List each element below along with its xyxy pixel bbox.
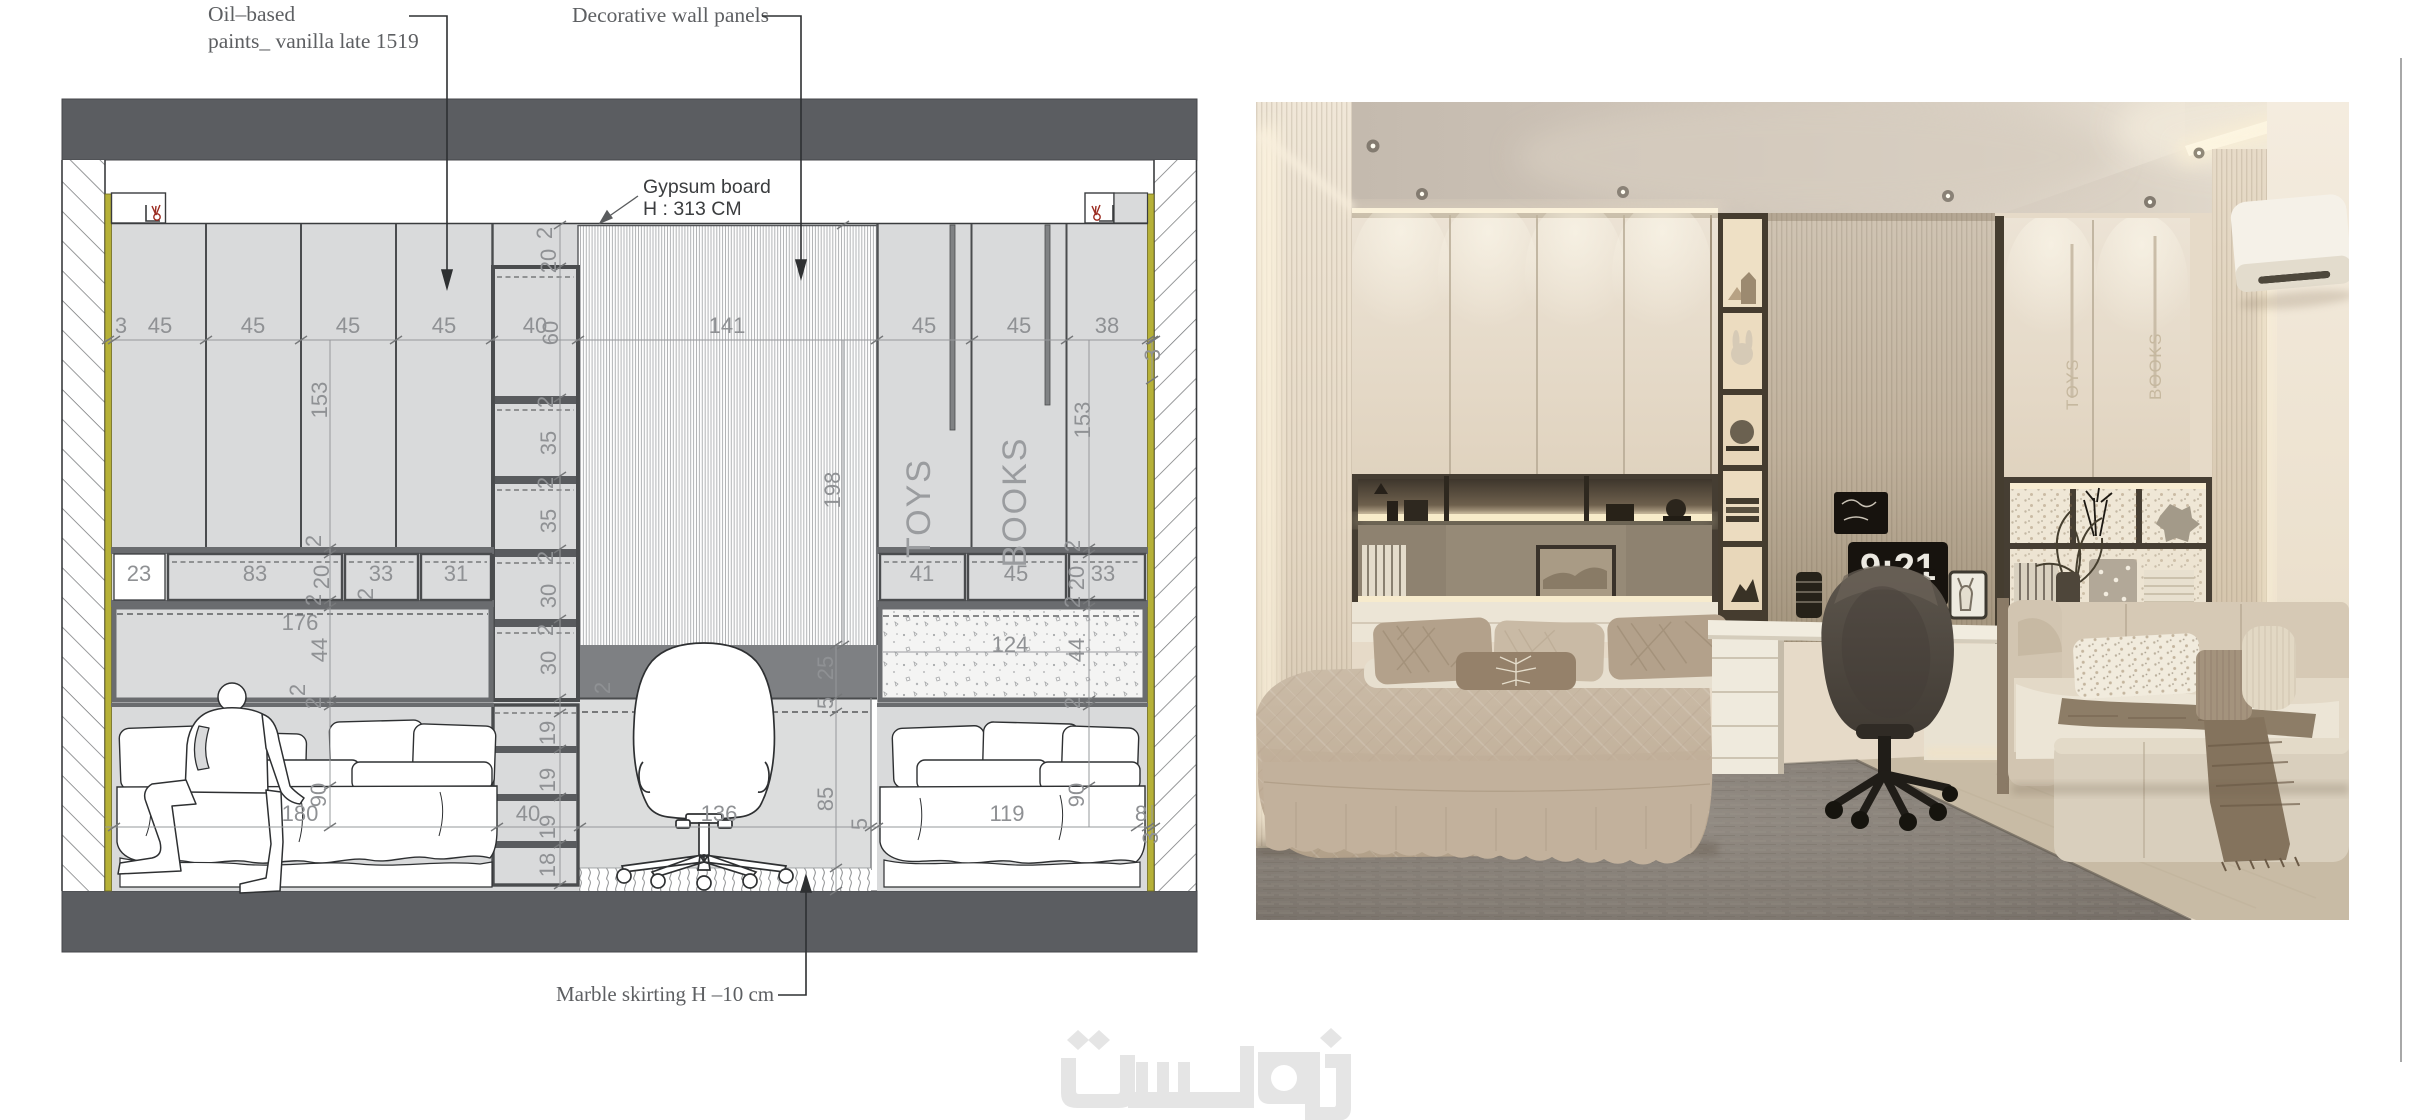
svg-text:23: 23 [127, 561, 151, 586]
svg-text:33: 33 [1091, 561, 1115, 586]
svg-text:45: 45 [1004, 561, 1028, 586]
svg-text:2: 2 [353, 588, 378, 600]
svg-text:35: 35 [536, 509, 561, 533]
svg-text:2: 2 [1060, 596, 1085, 608]
svg-text:2: 2 [533, 477, 558, 489]
svg-text:2: 2 [533, 396, 558, 408]
svg-text:119: 119 [989, 801, 1024, 826]
svg-text:2: 2 [533, 624, 558, 636]
svg-text:153: 153 [307, 382, 332, 419]
svg-text:18: 18 [535, 853, 560, 877]
svg-text:45: 45 [1007, 313, 1031, 338]
svg-text:Marble skirting H –10 cm: Marble skirting H –10 cm [556, 982, 774, 1006]
svg-text:85: 85 [813, 787, 838, 811]
svg-text:2: 2 [1060, 697, 1085, 709]
svg-text:BOOKS: BOOKS [996, 437, 1034, 568]
svg-text:38: 38 [1095, 313, 1119, 338]
svg-text:45: 45 [241, 313, 265, 338]
svg-text:20: 20 [536, 249, 561, 273]
svg-text:141: 141 [709, 313, 746, 338]
svg-text:44: 44 [1064, 638, 1089, 662]
svg-text:2: 2 [1060, 540, 1085, 552]
svg-text:44: 44 [307, 638, 332, 662]
svg-text:45: 45 [148, 313, 172, 338]
svg-text:3: 3 [1138, 832, 1163, 844]
svg-text:198: 198 [820, 472, 845, 509]
svg-text:BOOKS: BOOKS [2146, 332, 2165, 400]
svg-text:H : 313 CM: H : 313 CM [643, 198, 742, 220]
svg-text:30: 30 [536, 584, 561, 608]
svg-text:45: 45 [912, 313, 936, 338]
svg-text:176: 176 [282, 610, 319, 635]
svg-text:2: 2 [301, 697, 326, 709]
svg-text:19: 19 [535, 768, 560, 792]
svg-text:20: 20 [1064, 566, 1089, 590]
svg-text:153: 153 [1070, 402, 1095, 439]
svg-text:paints_ vanilla late 1519: paints_ vanilla late 1519 [208, 29, 419, 53]
svg-text:5: 5 [847, 818, 872, 830]
svg-text:25: 25 [813, 656, 838, 680]
svg-text:124: 124 [992, 632, 1029, 657]
svg-text:Gypsum board: Gypsum board [643, 176, 771, 198]
svg-text:90: 90 [306, 783, 331, 807]
svg-text:90: 90 [1064, 783, 1089, 807]
svg-text:Oil–based: Oil–based [208, 2, 295, 26]
svg-text:2: 2 [301, 535, 326, 547]
svg-text:19: 19 [535, 721, 560, 745]
svg-text:2: 2 [590, 682, 615, 694]
svg-text:3: 3 [115, 313, 127, 338]
svg-text:2: 2 [301, 594, 326, 606]
svg-text:20: 20 [309, 565, 334, 589]
svg-text:33: 33 [369, 561, 393, 586]
svg-text:19: 19 [535, 815, 560, 839]
svg-text:TOYS: TOYS [900, 458, 938, 558]
svg-text:5: 5 [813, 697, 838, 709]
svg-text:TOYS: TOYS [2063, 358, 2082, 410]
svg-text:35: 35 [536, 431, 561, 455]
svg-text:45: 45 [432, 313, 456, 338]
svg-text:30: 30 [536, 651, 561, 675]
svg-text:2: 2 [532, 227, 557, 239]
svg-text:83: 83 [243, 561, 267, 586]
svg-text:2: 2 [533, 551, 558, 563]
svg-text:2: 2 [285, 684, 310, 696]
svg-text:136: 136 [701, 801, 738, 826]
svg-text:31: 31 [444, 561, 468, 586]
svg-text:8: 8 [1135, 801, 1147, 826]
svg-text:60: 60 [538, 321, 563, 345]
svg-text:3: 3 [1140, 349, 1165, 361]
svg-text:45: 45 [336, 313, 360, 338]
svg-text:41: 41 [910, 561, 934, 586]
svg-text:Decorative wall panels: Decorative wall panels [572, 3, 769, 27]
